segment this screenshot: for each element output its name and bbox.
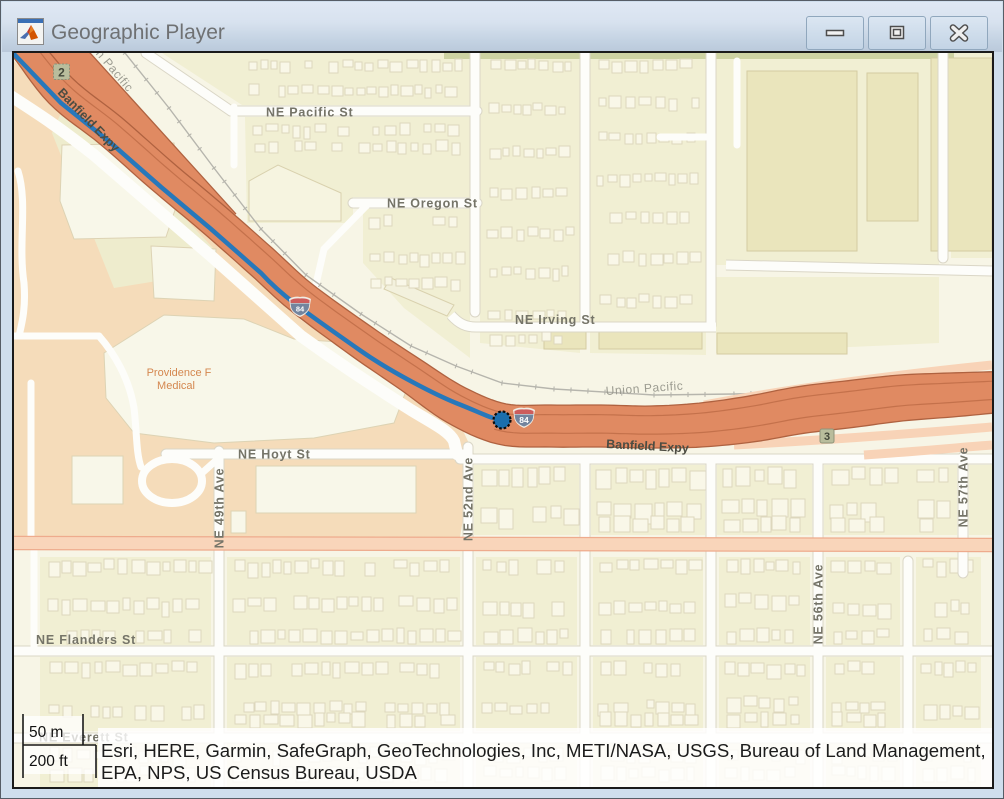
svg-text:Medical: Medical [157, 380, 195, 392]
svg-text:EPA, NPS, US Census Bureau, US: EPA, NPS, US Census Bureau, USDA [101, 762, 417, 783]
svg-text:84: 84 [296, 305, 305, 314]
svg-text:NE Irving St: NE Irving St [515, 313, 595, 327]
svg-text:NE 49th Ave: NE 49th Ave [212, 468, 226, 549]
svg-text:NE Pacific St: NE Pacific St [266, 106, 354, 120]
svg-text:50 m: 50 m [29, 724, 63, 741]
svg-text:Providence F: Providence F [147, 367, 212, 379]
svg-text:NE 57th Ave: NE 57th Ave [956, 447, 970, 528]
svg-text:NE 56th Ave: NE 56th Ave [811, 564, 825, 645]
svg-text:NE Hoyt St: NE Hoyt St [238, 448, 311, 462]
svg-text:84: 84 [519, 415, 529, 425]
svg-text:NE Oregon St: NE Oregon St [387, 197, 478, 211]
svg-text:3: 3 [824, 431, 830, 443]
svg-text:200 ft: 200 ft [29, 753, 68, 770]
svg-text:NE Flanders St: NE Flanders St [36, 633, 136, 647]
svg-text:2: 2 [58, 66, 65, 80]
svg-text:NE 52nd Ave: NE 52nd Ave [461, 457, 475, 541]
svg-text:Esri, HERE, Garmin, SafeGraph,: Esri, HERE, Garmin, SafeGraph, GeoTechno… [101, 740, 986, 761]
